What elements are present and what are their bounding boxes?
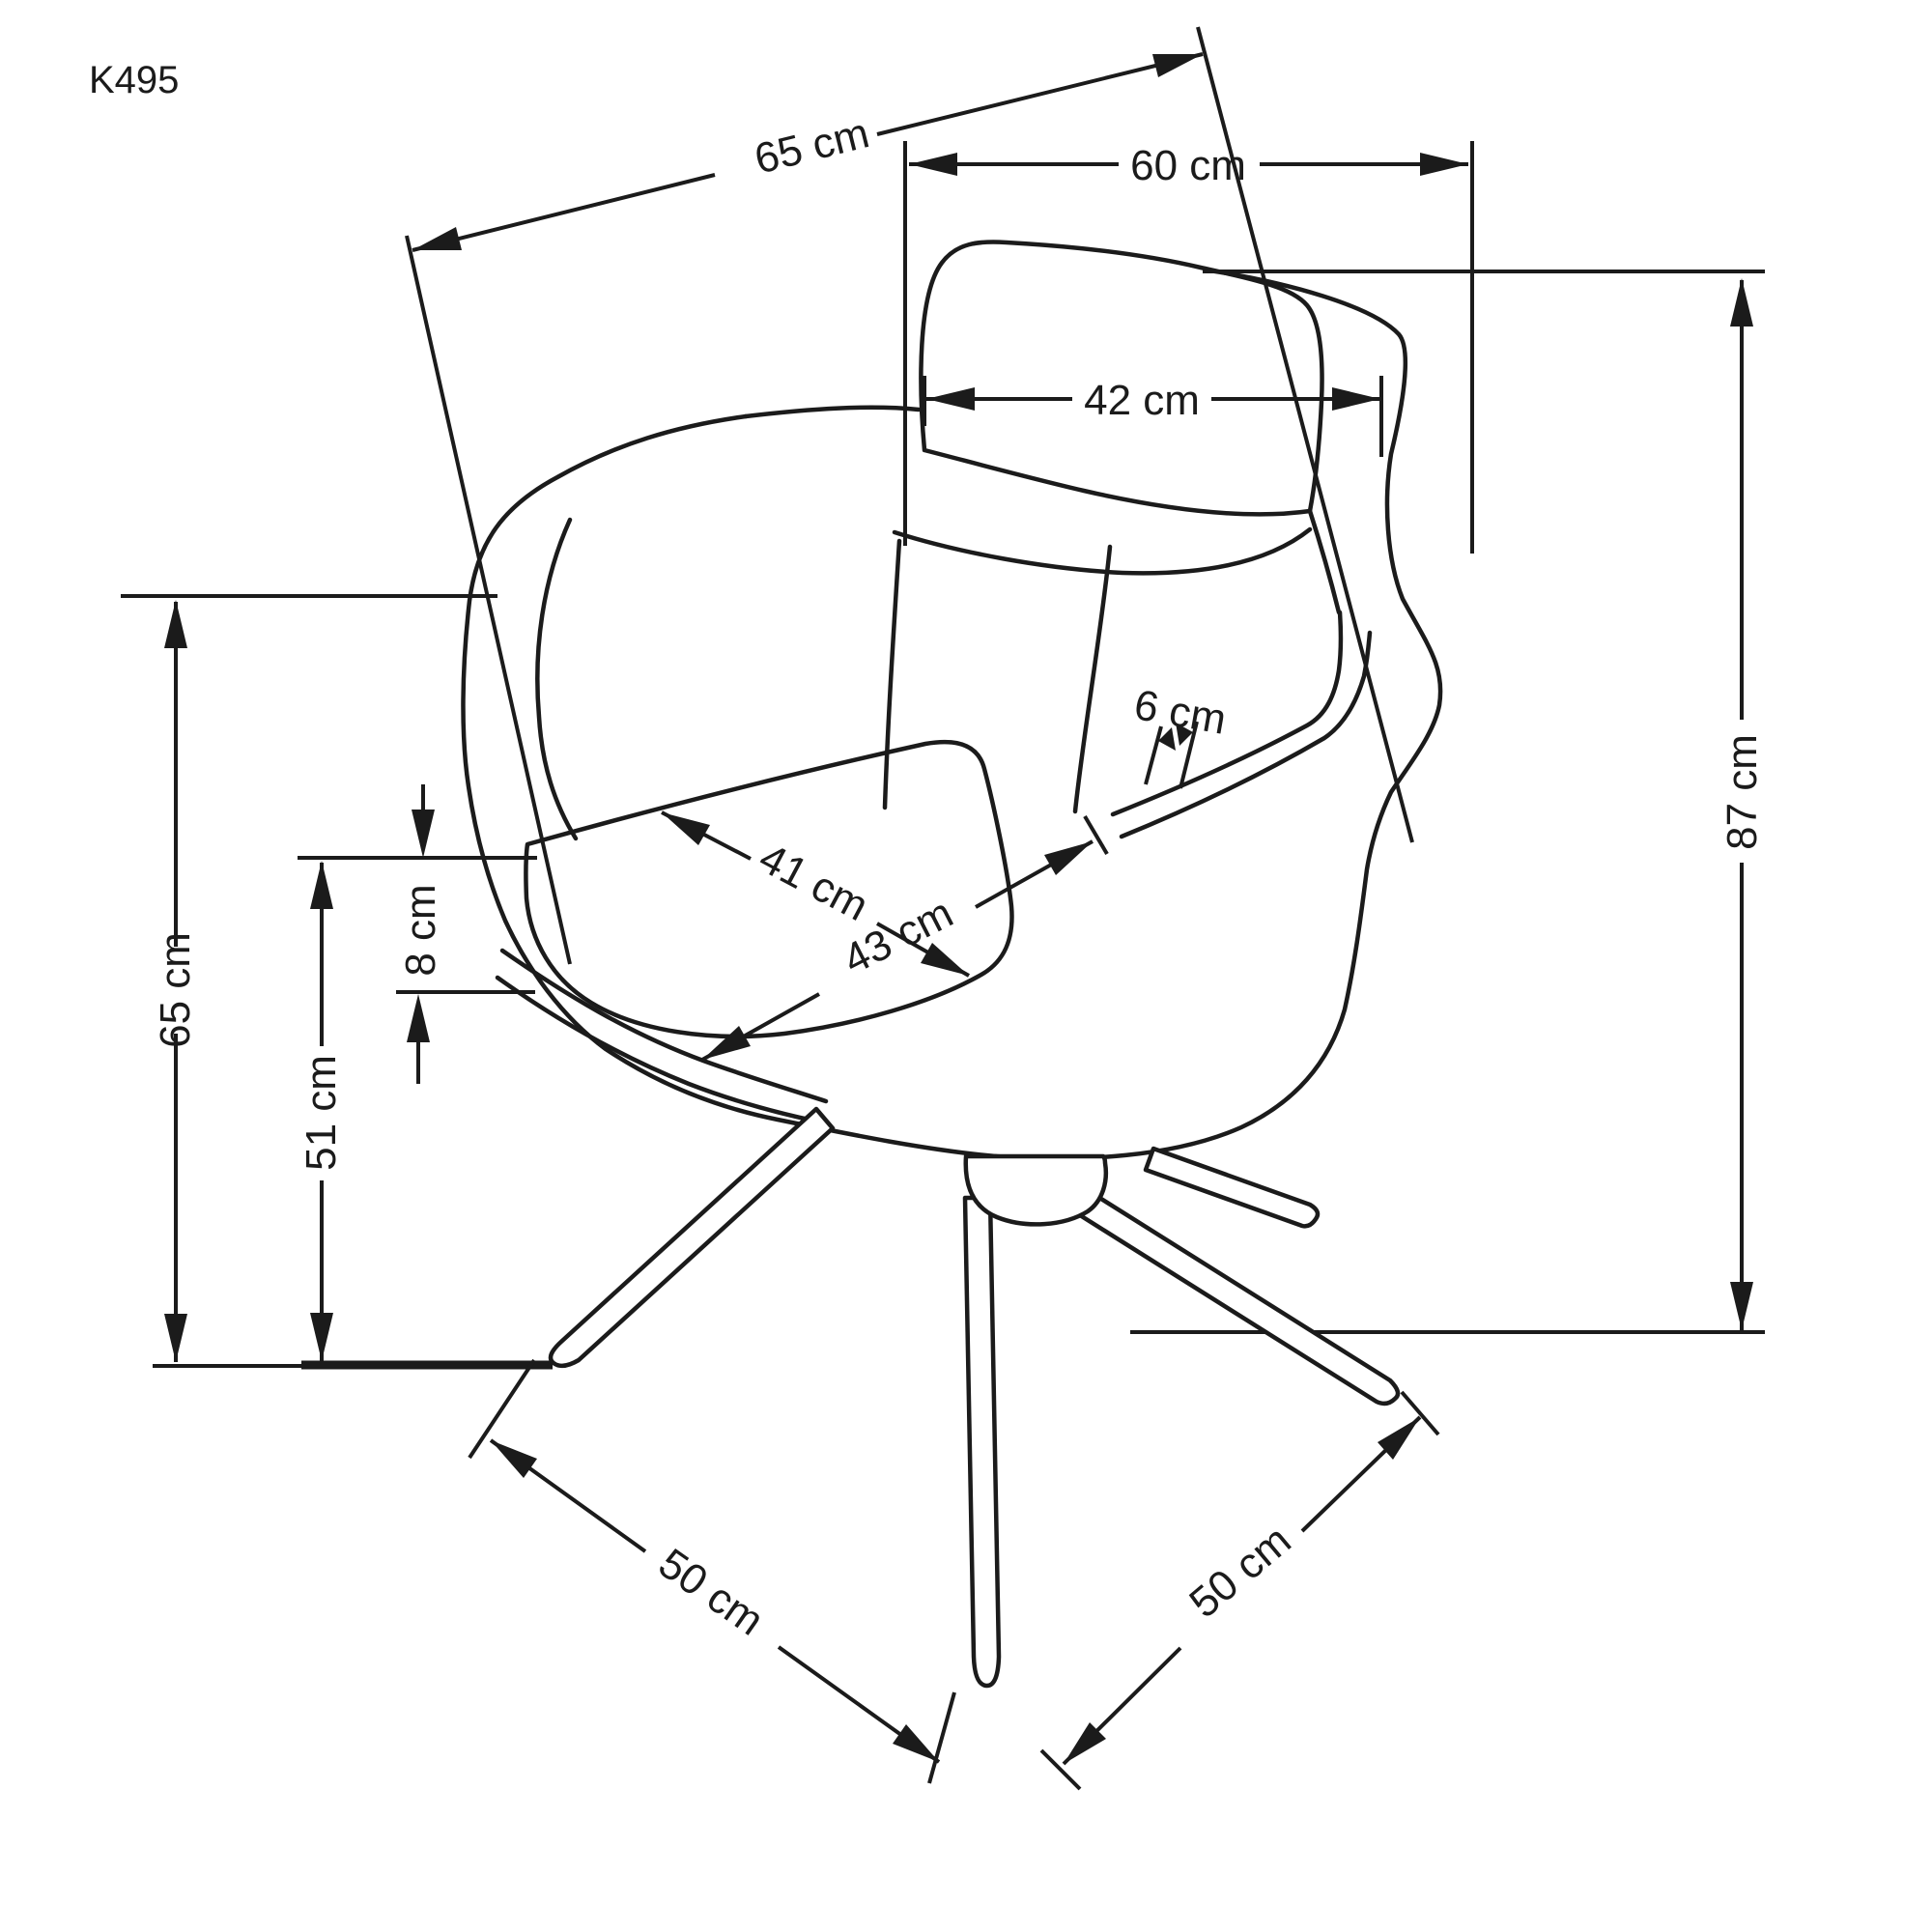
tick [1146, 726, 1161, 784]
arrowhead [412, 810, 435, 858]
front-left-leg [551, 1109, 833, 1366]
arrowhead [1730, 278, 1753, 327]
arrowhead [1152, 54, 1203, 77]
tick [929, 1692, 954, 1783]
tick [1085, 816, 1107, 854]
shell-front-rim-upper [502, 951, 826, 1101]
arrowhead [702, 1026, 751, 1060]
model-code-label: K495 [89, 59, 179, 101]
arrowhead [310, 861, 333, 909]
arrowhead [1730, 1282, 1753, 1330]
dimension-base-span-left: 50 cm [469, 1360, 954, 1783]
tick [469, 1360, 534, 1458]
shell-front-rim-lower [497, 978, 813, 1121]
floor-reference-lines [153, 1332, 1765, 1366]
chair-dimension-diagram: 65 cm 60 cm 42 cm 6 cm 41 cm [0, 0, 1932, 1932]
swivel-base [551, 1109, 1398, 1686]
dimension-cushion-thickness: 8 cm [298, 784, 537, 1084]
dimension-backrest-width: 42 cm [924, 376, 1381, 457]
front-center-leg [965, 1198, 999, 1686]
backrest-top-edge [746, 408, 919, 416]
arrowhead [1044, 841, 1093, 875]
dimension-seat-depth: 41 cm [662, 812, 969, 976]
arrowhead [310, 1313, 333, 1361]
dimension-label: 50 cm [650, 1540, 772, 1645]
arrowhead [412, 227, 462, 250]
dimension-label: 41 cm [752, 835, 876, 931]
arrowhead [926, 387, 975, 411]
left-armrest-inner-line [537, 520, 576, 838]
dimension-seat-height: 51 cm [298, 861, 345, 1361]
base-hub [966, 1156, 1106, 1224]
technical-drawing-page: 65 cm 60 cm 42 cm 6 cm 41 cm [0, 0, 1932, 1932]
dimension-base-span-right: 50 cm [1041, 1392, 1438, 1789]
arrowhead [164, 600, 187, 648]
arrowhead [1420, 153, 1468, 176]
arrowhead [662, 812, 710, 845]
wing-inner-edge [1310, 511, 1339, 612]
arrowhead [909, 153, 957, 176]
arrowhead [491, 1440, 537, 1478]
dimension-label: 87 cm [1719, 734, 1766, 850]
back-right-leg [1146, 1149, 1318, 1226]
arrowhead [407, 994, 430, 1042]
chair-drawing [463, 241, 1440, 1158]
arrowhead [164, 1314, 187, 1362]
arrowhead [893, 1724, 939, 1762]
right-leg [1080, 1194, 1398, 1404]
dimension-label: 65 cm [152, 932, 199, 1048]
dimension-label: 50 cm [1180, 1517, 1299, 1628]
dimension-label: 65 cm [750, 109, 873, 184]
dimension-label: 6 cm [1131, 681, 1230, 744]
dimension-label: 60 cm [1130, 142, 1246, 189]
dimension-backrest-height: 65 cm [121, 596, 497, 1362]
dimension-label: 8 cm [397, 884, 444, 976]
dimension-label: 51 cm [298, 1055, 345, 1171]
arrowhead [1332, 387, 1380, 411]
dimension-overall-width: 65 cm [407, 27, 1412, 964]
dimension-label: 42 cm [1084, 377, 1200, 424]
backrest-band-seam [895, 529, 1310, 573]
backrest-center-seam [1075, 547, 1110, 811]
backrest-left-edge [885, 541, 899, 808]
dimension-total-height: 87 cm [1203, 271, 1766, 1330]
